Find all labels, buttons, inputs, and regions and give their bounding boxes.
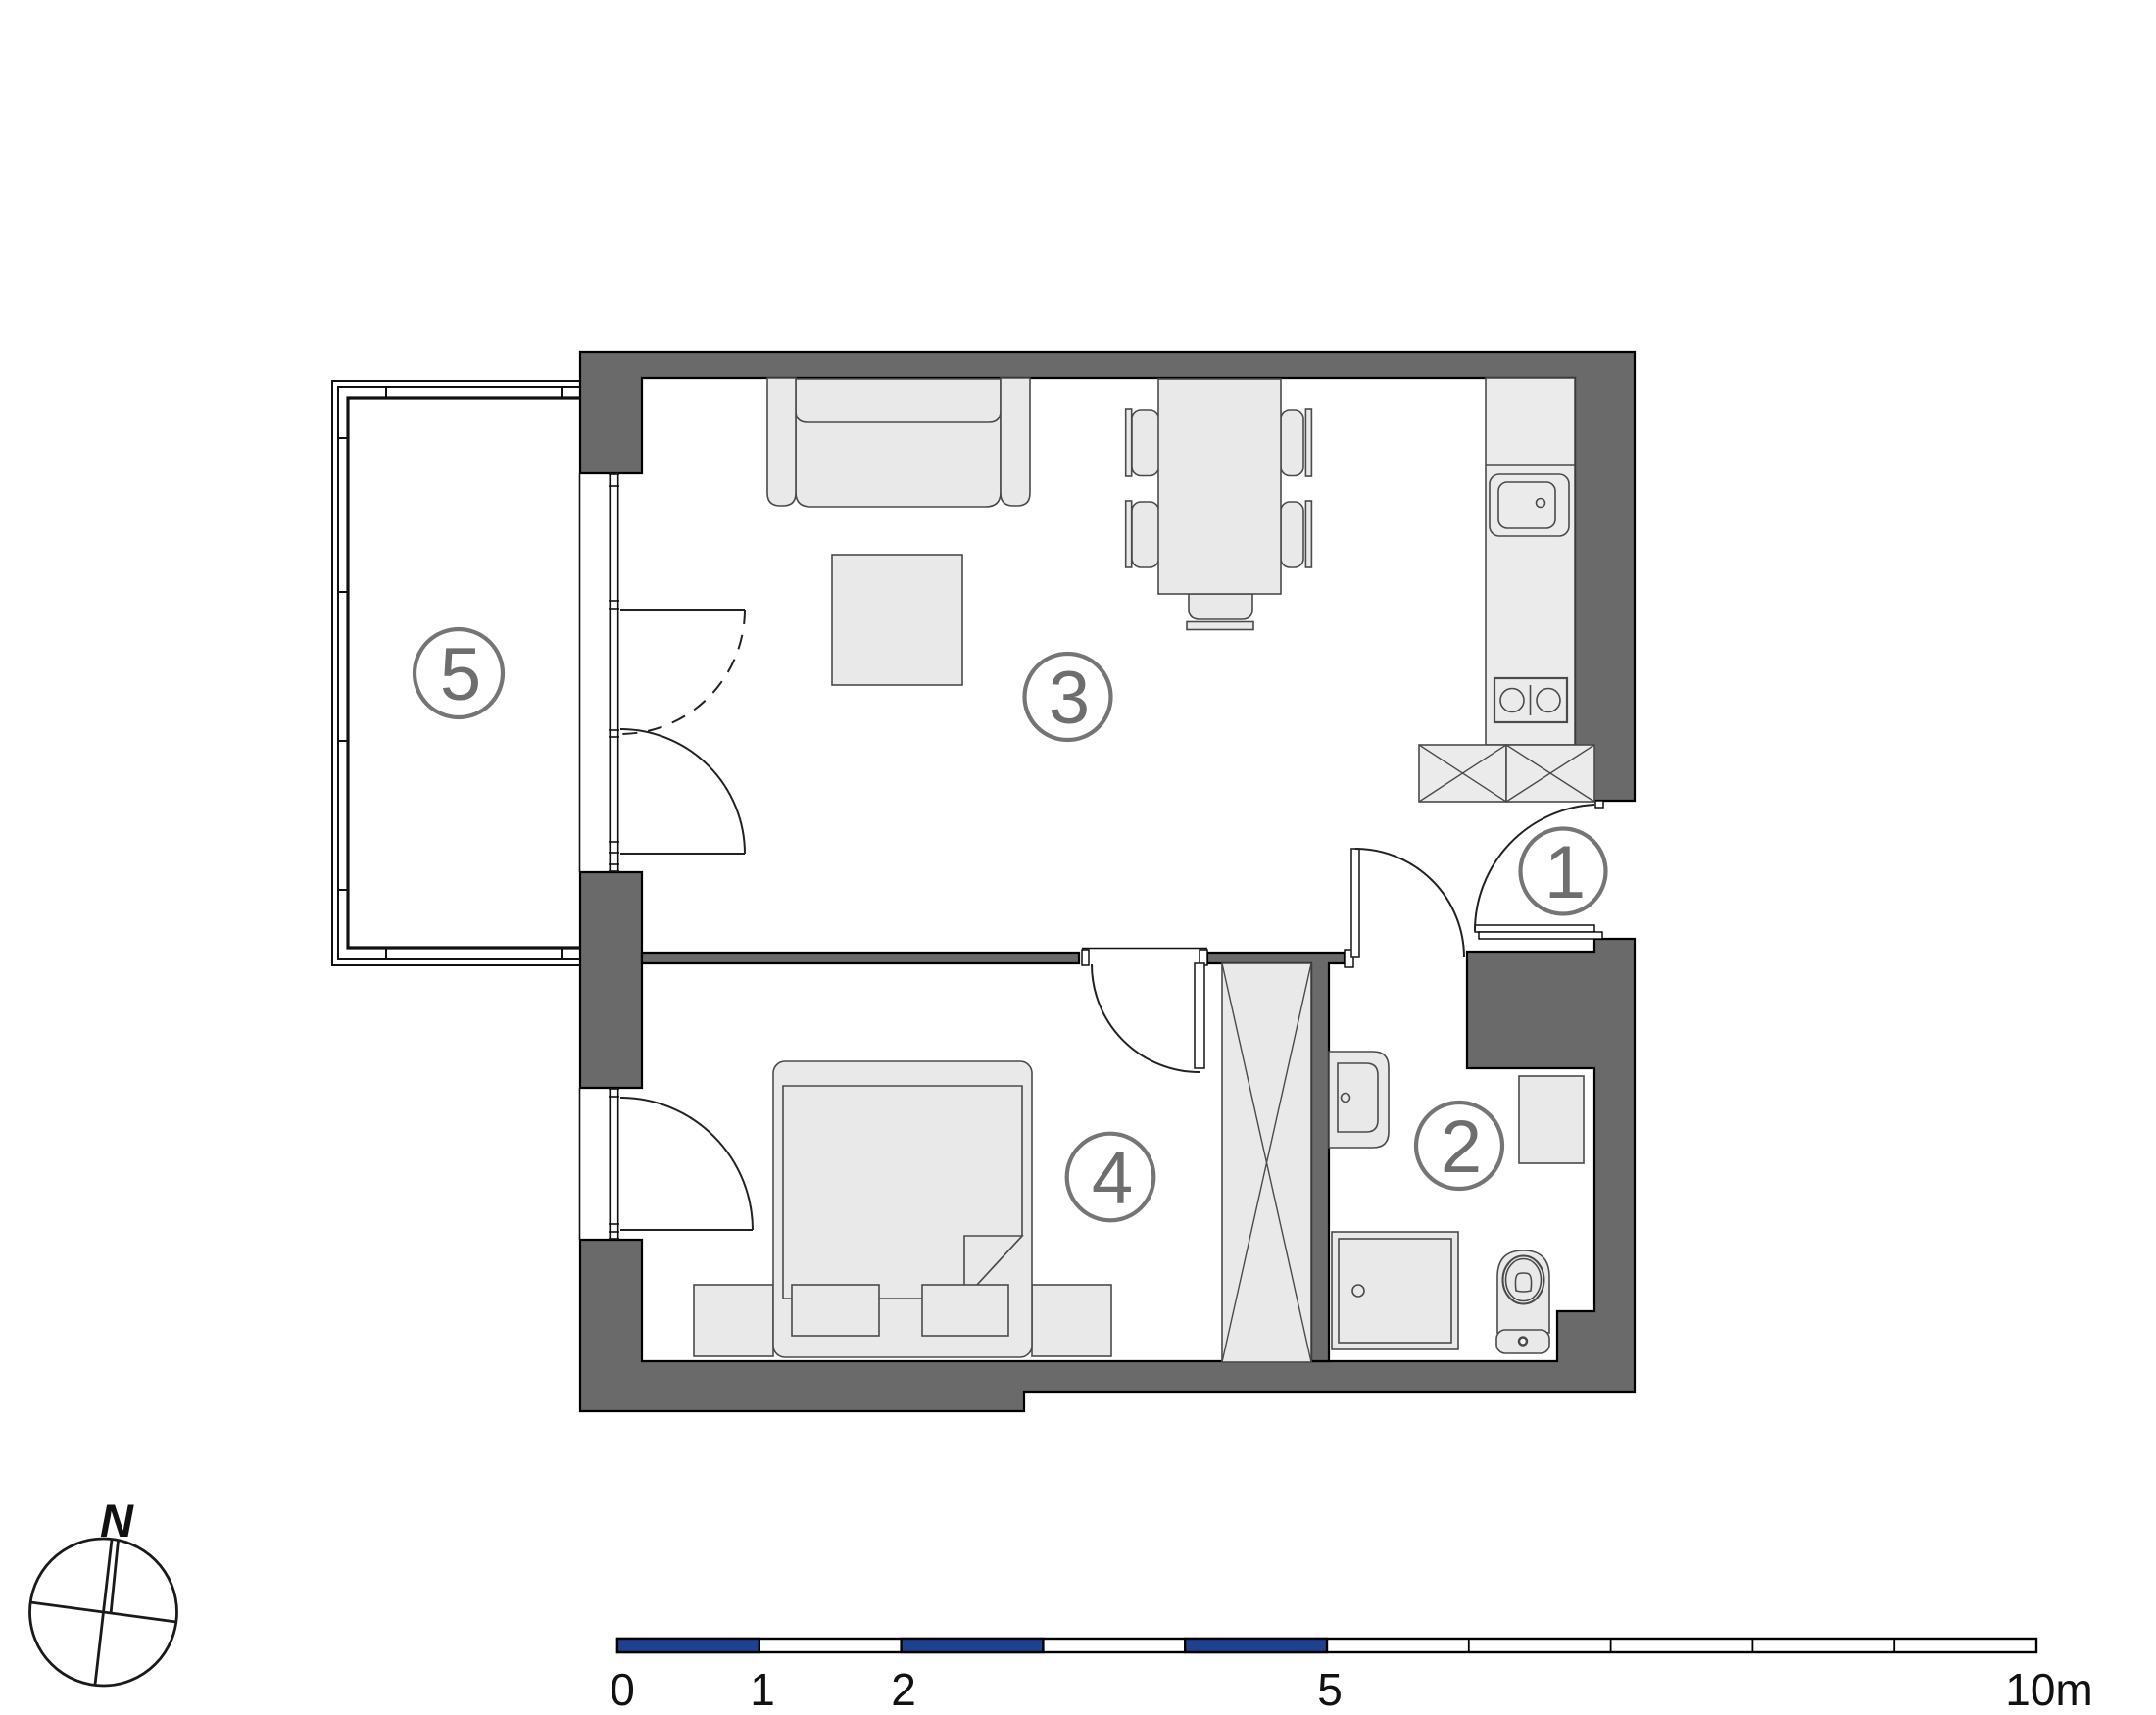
svg-text:10m: 10m <box>2005 1664 2092 1715</box>
svg-text:5: 5 <box>440 633 481 716</box>
svg-text:2: 2 <box>1441 1105 1482 1189</box>
svg-text:0: 0 <box>610 1664 635 1715</box>
svg-text:1: 1 <box>750 1664 775 1715</box>
svg-text:2: 2 <box>891 1664 916 1715</box>
svg-text:5: 5 <box>1317 1664 1343 1715</box>
svg-text:N: N <box>100 1494 134 1546</box>
svg-text:4: 4 <box>1092 1137 1133 1220</box>
svg-text:3: 3 <box>1049 657 1090 740</box>
svg-text:1: 1 <box>1544 831 1586 914</box>
